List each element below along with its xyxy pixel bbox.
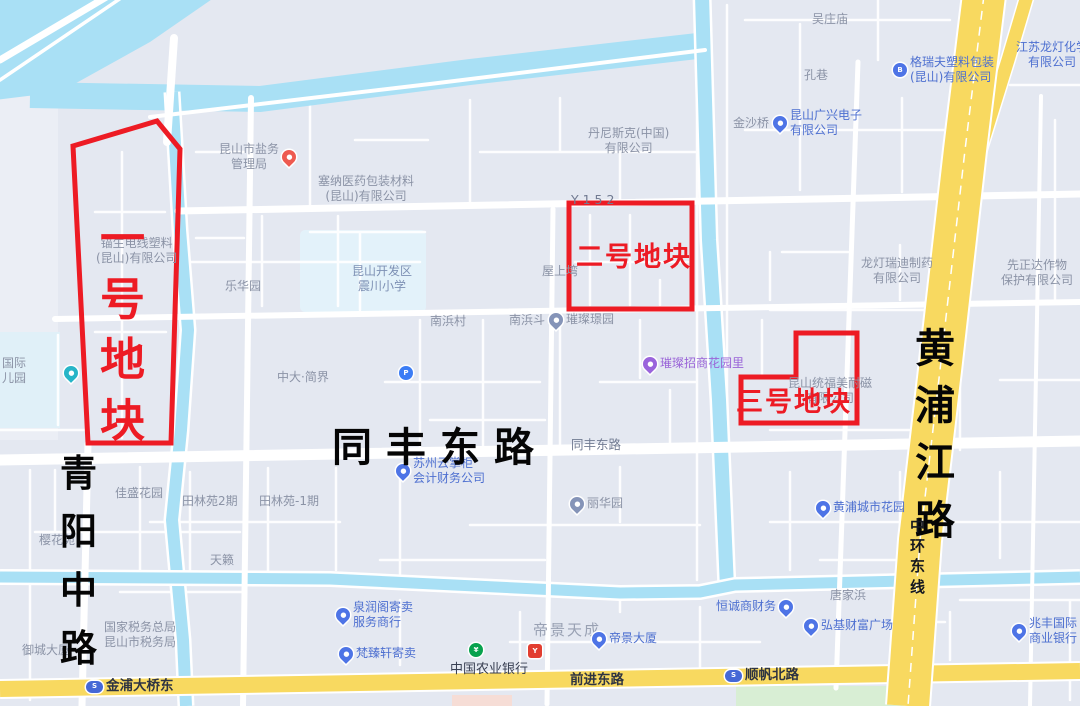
poi-tianlai[interactable]: 天籁	[210, 553, 234, 568]
station-shunfan-beilu-text: 顺帆北路	[745, 667, 799, 684]
pin-teal-icon[interactable]: ●	[61, 363, 81, 383]
pin-blue-icon[interactable]: ●	[813, 498, 833, 518]
circle-green-icon[interactable]: ¥	[469, 643, 483, 657]
poi-guoji-eryuan[interactable]: 国际 儿园	[2, 356, 26, 387]
parcel-3-label: 三号地块	[736, 386, 852, 421]
poi-zhaofeng-guoji[interactable]: ●兆丰国际 商业银行	[1012, 616, 1077, 647]
poi-dijing-tiancheng-text: 帝景天成	[533, 621, 601, 639]
poi-xianzhengda-text: 先正达作物 保护有限公司	[1001, 258, 1073, 287]
poi-wuzhuangmiao[interactable]: 吴庄庙	[812, 12, 848, 27]
poi-guojia-shuiwu[interactable]: 国家税务总局 昆山市税务局	[104, 620, 176, 651]
parcel-1-label: 一号地块	[100, 210, 145, 452]
poi-nanbangcun[interactable]: 南浜村	[430, 314, 466, 329]
poi-longdeng-ruidi-text: 龙灯瑞迪制药 有限公司	[861, 256, 933, 285]
poi-tangjiabang-text: 唐家浜	[830, 588, 866, 602]
station-shunfan-beilu[interactable]: S顺帆北路	[725, 667, 799, 684]
pin-gray-icon[interactable]: ●	[546, 310, 566, 330]
poi-zhenchuan-xiaoxue[interactable]: 昆山开发区 震川小学	[352, 264, 412, 295]
poi-abc-bank[interactable]: 中国农业银行	[450, 662, 528, 679]
roadname-huangpu-jianglu-text: 黄浦江路	[915, 324, 955, 547]
circle-p-icon[interactable]: P	[399, 366, 413, 380]
poi-yanwu-guanliju-text: 昆山市盐务 管理局	[219, 142, 279, 173]
poi-nanbangdou-text: 南浜斗	[509, 313, 545, 327]
pin-blue-icon[interactable]: ●	[589, 629, 609, 649]
poi-fanzhen-jimai-text: 梵臻轩寄卖	[356, 646, 416, 661]
roadname-zhonghuan-dongxian-text: 中环东线	[910, 517, 925, 597]
pin-blue-icon[interactable]: ●	[776, 597, 796, 617]
poi-saina-yiyao[interactable]: 塞纳医药包装材料 (昆山)有限公司	[318, 174, 414, 205]
poi-food-pin[interactable]: Y	[528, 644, 542, 658]
poi-longdeng-ruidi[interactable]: 龙灯瑞迪制药 有限公司	[861, 256, 933, 287]
poi-parking[interactable]: P	[399, 366, 413, 380]
poi-tianlinyuan-2[interactable]: 田林苑2期	[182, 494, 238, 509]
poi-nanbangdou[interactable]: 南浜斗	[509, 313, 545, 328]
pin-red-icon[interactable]: ●	[279, 147, 299, 167]
map-labels-layer: 吴庄庙孔巷金沙桥●昆山广兴电子 有限公司B格瑞夫塑料包装 (昆山)有限公司江苏龙…	[0, 0, 1080, 706]
poi-jinshaqiao-text: 金沙桥	[733, 116, 769, 130]
poi-lehuayuan[interactable]: 乐华园	[225, 279, 261, 294]
station-jinpu-daqiao[interactable]: S金浦大桥东	[86, 678, 174, 695]
poi-cuican-jingyuan-text: 璀璨璟园	[566, 312, 614, 327]
poi-dijing-dasha[interactable]: ●帝景大厦	[592, 631, 657, 646]
poi-geruifu[interactable]: B格瑞夫塑料包装 (昆山)有限公司	[893, 55, 994, 86]
poi-guojia-shuiwu-text: 国家税务总局 昆山市税务局	[104, 620, 176, 649]
poi-dannisike-text: 丹尼斯克(中国) 有限公司	[588, 126, 669, 155]
pin-blue-icon[interactable]: ●	[336, 644, 356, 664]
poi-jiangsu-longdeng-text: 江苏龙灯化学 有限公司	[1016, 40, 1080, 69]
parcel-2-label-text: 二号地块	[576, 242, 692, 273]
poi-eryuan-pin[interactable]: ●	[64, 366, 78, 380]
pin-blue-icon[interactable]: ●	[333, 605, 353, 625]
poi-lihuayuan-text: 丽华园	[587, 496, 623, 511]
parcel-3-label-text: 三号地块	[736, 387, 852, 418]
poi-jinshaqiao[interactable]: 金沙桥	[733, 116, 769, 131]
poi-cuican-zhaoshang-text: 璀璨招商花园里	[660, 356, 744, 371]
roadname-tongfeng-donglu: 同丰东路	[332, 423, 548, 474]
poi-quanrun-jimai-text: 泉润阁寄卖 服务商行	[353, 600, 413, 631]
poi-lehuayuan-text: 乐华园	[225, 279, 261, 293]
roadname-zhonghuan-dongxian: 中环东线	[910, 517, 925, 598]
poi-abc-bank-pin[interactable]: ¥	[469, 643, 483, 657]
poi-kunshan-guangxing-text: 昆山广兴电子 有限公司	[790, 108, 862, 139]
poi-tianlinyuan-1[interactable]: 田林苑-1期	[259, 494, 319, 509]
poi-abc-bank-text: 中国农业银行	[450, 662, 528, 677]
poi-tianlinyuan-2-text: 田林苑2期	[182, 494, 238, 508]
square-red-icon[interactable]: Y	[528, 644, 542, 658]
roadname-tongfeng-donglu-text: 同丰东路	[332, 425, 548, 471]
poi-zhongda-jianjie[interactable]: 中大·简界	[277, 370, 329, 385]
poi-wuzhuangmiao-text: 吴庄庙	[812, 12, 848, 26]
poi-tangjiabang[interactable]: 唐家浜	[830, 588, 866, 603]
roadlabel-y152: Y 1 5 2	[571, 192, 614, 208]
roadlabel-tongfeng-small-text: 同丰东路	[571, 437, 621, 452]
poi-tianlinyuan-1-text: 田林苑-1期	[259, 494, 319, 508]
poi-quanrun-jimai[interactable]: ●泉润阁寄卖 服务商行	[336, 600, 413, 631]
roadlabel-qianjin-text: 前进东路	[570, 672, 624, 688]
poi-guoji-eryuan-text: 国际 儿园	[2, 356, 26, 385]
poi-hengcheng-caiwu[interactable]: 恒诚商财务●	[716, 599, 793, 614]
parcel-1-label-text: 一号地块	[100, 210, 145, 449]
metro-icon[interactable]: S	[725, 670, 742, 682]
poi-dijing-dasha-text: 帝景大厦	[609, 631, 657, 646]
roadname-qingyang-zhonglu: 青阳中路	[60, 450, 97, 683]
roadlabel-tongfeng-small: 同丰东路	[571, 437, 621, 453]
poi-hongji-guangchang-text: 弘基财富广场	[821, 618, 893, 633]
poi-jiasheng-huayuan-text: 佳盛花园	[115, 486, 163, 500]
poi-kongxiang-text: 孔巷	[804, 68, 828, 82]
pin-blue-icon[interactable]: ●	[770, 113, 790, 133]
poi-huangpu-chengshi-text: 黄浦城市花园	[833, 500, 905, 515]
pin-blue-icon[interactable]: ●	[1009, 621, 1029, 641]
poi-dannisike[interactable]: 丹尼斯克(中国) 有限公司	[588, 126, 669, 157]
pin-purple-icon[interactable]: ●	[640, 354, 660, 374]
poi-zhenchuan-xiaoxue-text: 昆山开发区 震川小学	[352, 264, 412, 293]
poi-cuican-zhaoshang[interactable]: ●璀璨招商花园里	[643, 356, 744, 371]
poi-nanbangcun-text: 南浜村	[430, 314, 466, 328]
roadlabel-y152-text: Y 1 5 2	[571, 192, 614, 207]
poi-wushangwan-text: 屋上塆	[542, 264, 578, 278]
poi-xianzhengda[interactable]: 先正达作物 保护有限公司	[1001, 258, 1073, 289]
poi-kunshan-guangxing[interactable]: ●昆山广兴电子 有限公司	[773, 108, 862, 139]
pin-gray-icon[interactable]: ●	[567, 494, 587, 514]
poi-jiangsu-longdeng[interactable]: 江苏龙灯化学 有限公司	[1016, 40, 1080, 71]
poi-saina-yiyao-text: 塞纳医药包装材料 (昆山)有限公司	[318, 174, 414, 203]
pin-blue-icon[interactable]: ●	[801, 616, 821, 636]
station-jinpu-daqiao-text: 金浦大桥东	[106, 678, 174, 695]
poi-zhongda-jianjie-text: 中大·简界	[277, 370, 329, 384]
poi-lihuayuan[interactable]: ●丽华园	[570, 496, 623, 511]
parcel-2-label: 二号地块	[576, 241, 692, 276]
poi-hengcheng-caiwu-text: 恒诚商财务	[716, 599, 776, 614]
poi-fanzhen-jimai[interactable]: ●梵臻轩寄卖	[339, 646, 416, 661]
poi-wushangwan[interactable]: 屋上塆	[542, 264, 578, 279]
roadlabel-qianjin: 前进东路	[570, 672, 624, 689]
poi-jiasheng-huayuan[interactable]: 佳盛花园	[115, 486, 163, 501]
roadname-qingyang-zhonglu-text: 青阳中路	[60, 450, 97, 672]
poi-geruifu-text: 格瑞夫塑料包装 (昆山)有限公司	[910, 55, 994, 86]
poi-zhaofeng-guoji-text: 兆丰国际 商业银行	[1029, 616, 1077, 647]
poi-kongxiang[interactable]: 孔巷	[804, 68, 828, 83]
map-canvas[interactable]: 吴庄庙孔巷金沙桥●昆山广兴电子 有限公司B格瑞夫塑料包装 (昆山)有限公司江苏龙…	[0, 0, 1080, 706]
poi-yanwu-guanliju[interactable]: 昆山市盐务 管理局●	[219, 142, 296, 173]
poi-tianlai-text: 天籁	[210, 553, 234, 567]
poi-huangpu-chengshi[interactable]: ●黄浦城市花园	[816, 500, 905, 515]
poi-hongji-guangchang[interactable]: ●弘基财富广场	[804, 618, 893, 633]
circle-blue-icon[interactable]: B	[893, 63, 907, 77]
poi-cuican-jingyuan[interactable]: ●璀璨璟园	[549, 312, 614, 327]
